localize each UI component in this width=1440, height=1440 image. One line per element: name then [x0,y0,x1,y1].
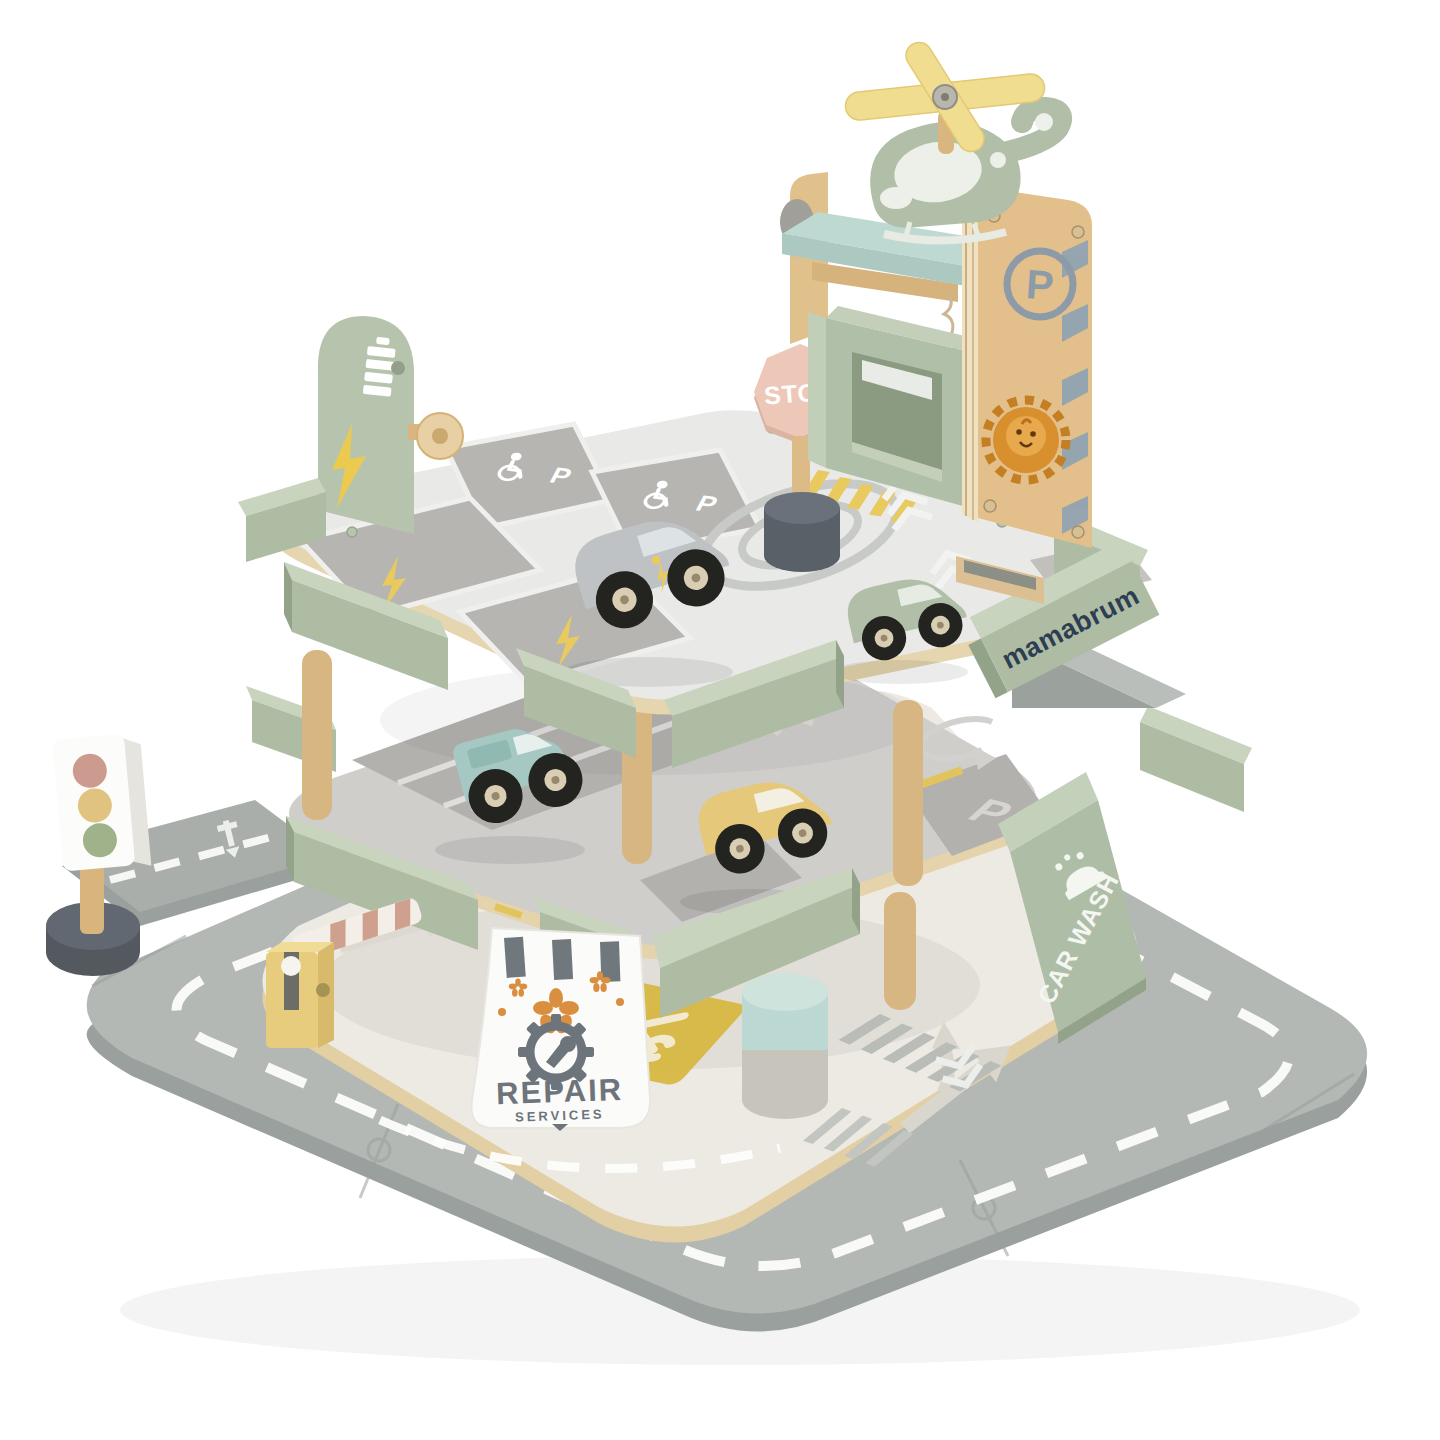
product-photo-wooden-parking-garage: P P [0,0,1440,1440]
tower-wood-panel: P [962,190,1092,548]
repair-sign: REPAIR SERVICES [471,928,650,1131]
wood-column-upper-1 [302,650,332,820]
charging-peg [408,413,463,459]
traffic-light [46,732,151,976]
barrier-middle-rear-right [1140,706,1252,812]
tower-parking-label: P [1025,261,1056,309]
services-label: SERVICES [515,1106,605,1124]
ground-pillar-1 [742,973,828,1119]
toy-garage-illustration: P P [0,0,1440,1440]
traffic-light-pole [80,862,104,934]
wood-column-upper-3 [893,700,923,886]
wood-column-ground-2 [884,892,916,1010]
repair-label: REPAIR [496,1072,624,1111]
